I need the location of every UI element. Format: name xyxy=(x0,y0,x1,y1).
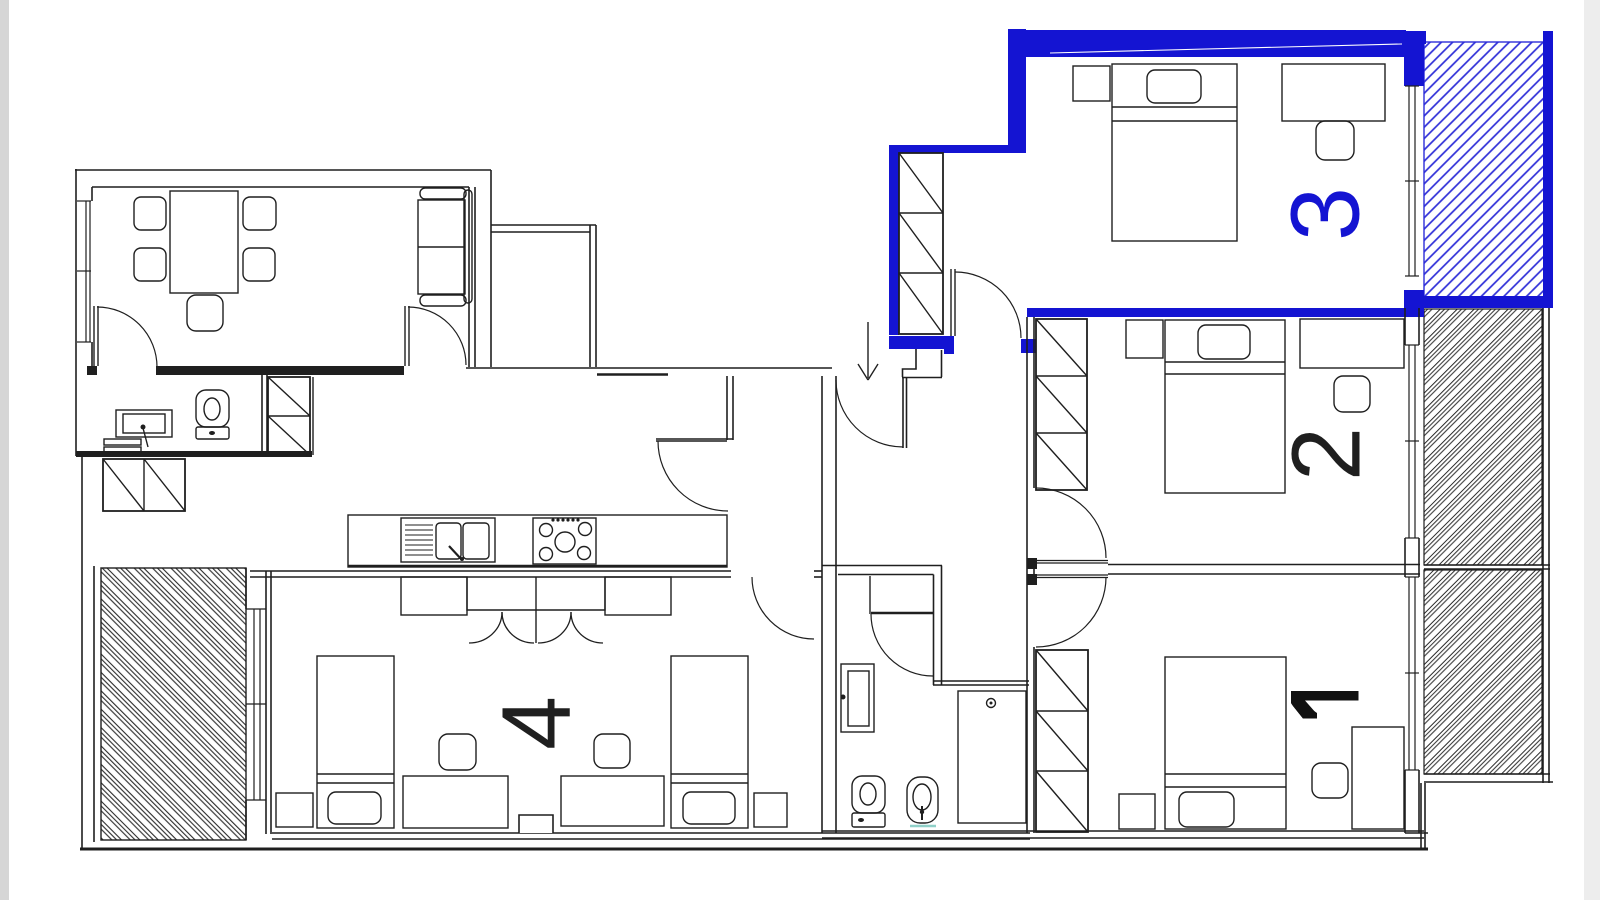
svg-text:2: 2 xyxy=(1272,427,1381,481)
svg-text:4: 4 xyxy=(482,696,591,750)
svg-text:3: 3 xyxy=(1271,187,1380,241)
